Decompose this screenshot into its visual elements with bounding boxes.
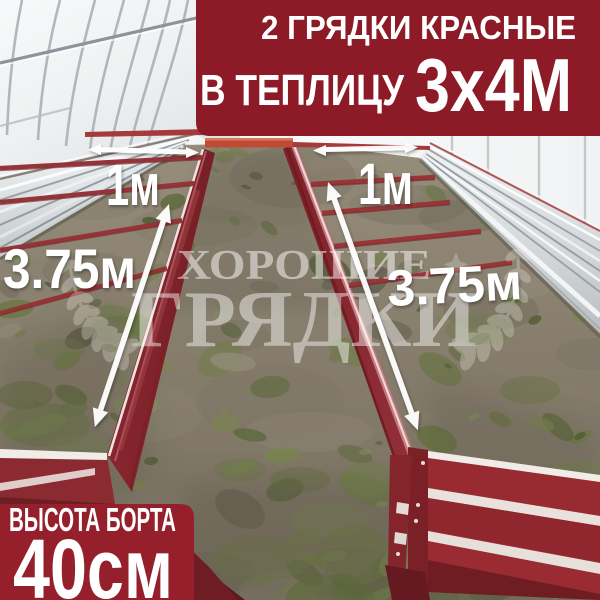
svg-text:40см: 40см bbox=[13, 522, 173, 600]
svg-text:В ТЕПЛИЦУ: В ТЕПЛИЦУ bbox=[200, 66, 405, 115]
svg-text:3х4М: 3х4М bbox=[415, 43, 572, 127]
svg-text:1м: 1м bbox=[106, 153, 160, 218]
svg-text:3.75м: 3.75м bbox=[3, 237, 136, 300]
svg-text:2 ГРЯДКИ КРАСНЫЕ: 2 ГРЯДКИ КРАСНЫЕ bbox=[261, 9, 576, 46]
svg-text:1м: 1м bbox=[358, 152, 413, 217]
svg-text:3.75м: 3.75м bbox=[386, 253, 524, 317]
